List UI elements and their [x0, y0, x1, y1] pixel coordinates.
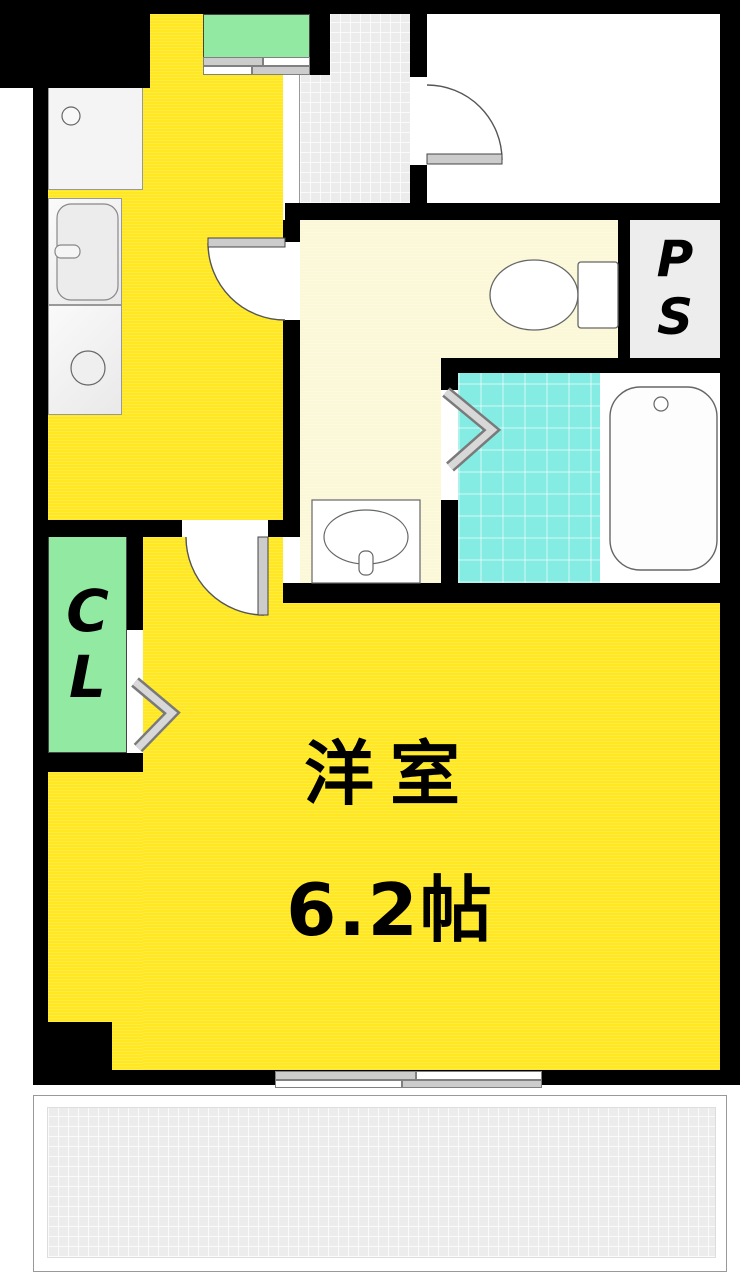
- kitchen-door-opening: [283, 242, 300, 320]
- wall-under-washroom: [283, 583, 720, 603]
- storage-sliding-door-panel: [263, 57, 310, 66]
- closet-letter-c: C: [66, 578, 109, 644]
- main-room-name: 洋室: [150, 718, 630, 819]
- pipe-space-label: P S: [630, 218, 720, 358]
- bathtub-area: [600, 373, 720, 583]
- main-room-area: 6.2帖: [150, 851, 630, 956]
- entrance-door-opening: [410, 77, 427, 165]
- bathroom-floor: [458, 373, 600, 583]
- storage-sliding-door-panel: [203, 66, 252, 75]
- stove-unit: [48, 305, 122, 415]
- entry-step-strip: [283, 75, 300, 203]
- storage-cabinet: [203, 14, 310, 58]
- wall-topleft-block: [0, 0, 150, 88]
- main-room-label: 洋室 6.2帖: [150, 718, 630, 956]
- closet-door-opening: [127, 630, 143, 753]
- wall-closet-bottom: [33, 753, 143, 772]
- washroom-floor: [300, 358, 441, 583]
- balcony-sliding-window-panel: [402, 1080, 542, 1088]
- bathroom-door-opening: [441, 390, 458, 500]
- wall-storage-right: [310, 14, 330, 75]
- wall-above-bathroom: [441, 358, 720, 373]
- closet-label: C L: [48, 535, 127, 753]
- entrance-hall-floor: [427, 14, 720, 203]
- storage-sliding-door-panel: [203, 57, 263, 66]
- wall-closet-right: [127, 535, 143, 630]
- wall-left: [33, 88, 48, 1085]
- ps-letter-s: S: [657, 288, 693, 346]
- balcony-sliding-window-panel: [275, 1080, 402, 1088]
- kitchen-sink-unit: [48, 198, 122, 305]
- balcony-sliding-window-panel: [416, 1071, 542, 1080]
- main-room-door-opening: [182, 520, 268, 537]
- wall-toilet-ps: [618, 218, 630, 358]
- wall-kitchen-mainroom-right: [268, 520, 283, 537]
- storage-sliding-door-panel: [252, 66, 310, 75]
- closet-letter-l: L: [69, 644, 106, 710]
- balcony-floor: [47, 1107, 716, 1258]
- floorplan-canvas: 洋室 6.2帖 C L P S: [0, 0, 749, 1280]
- toilet-room-floor: [300, 220, 618, 358]
- ps-letter-p: P: [657, 230, 694, 288]
- washing-machine-pan: [48, 83, 143, 190]
- wall-right: [720, 0, 740, 1085]
- balcony-sliding-window-panel: [275, 1071, 416, 1080]
